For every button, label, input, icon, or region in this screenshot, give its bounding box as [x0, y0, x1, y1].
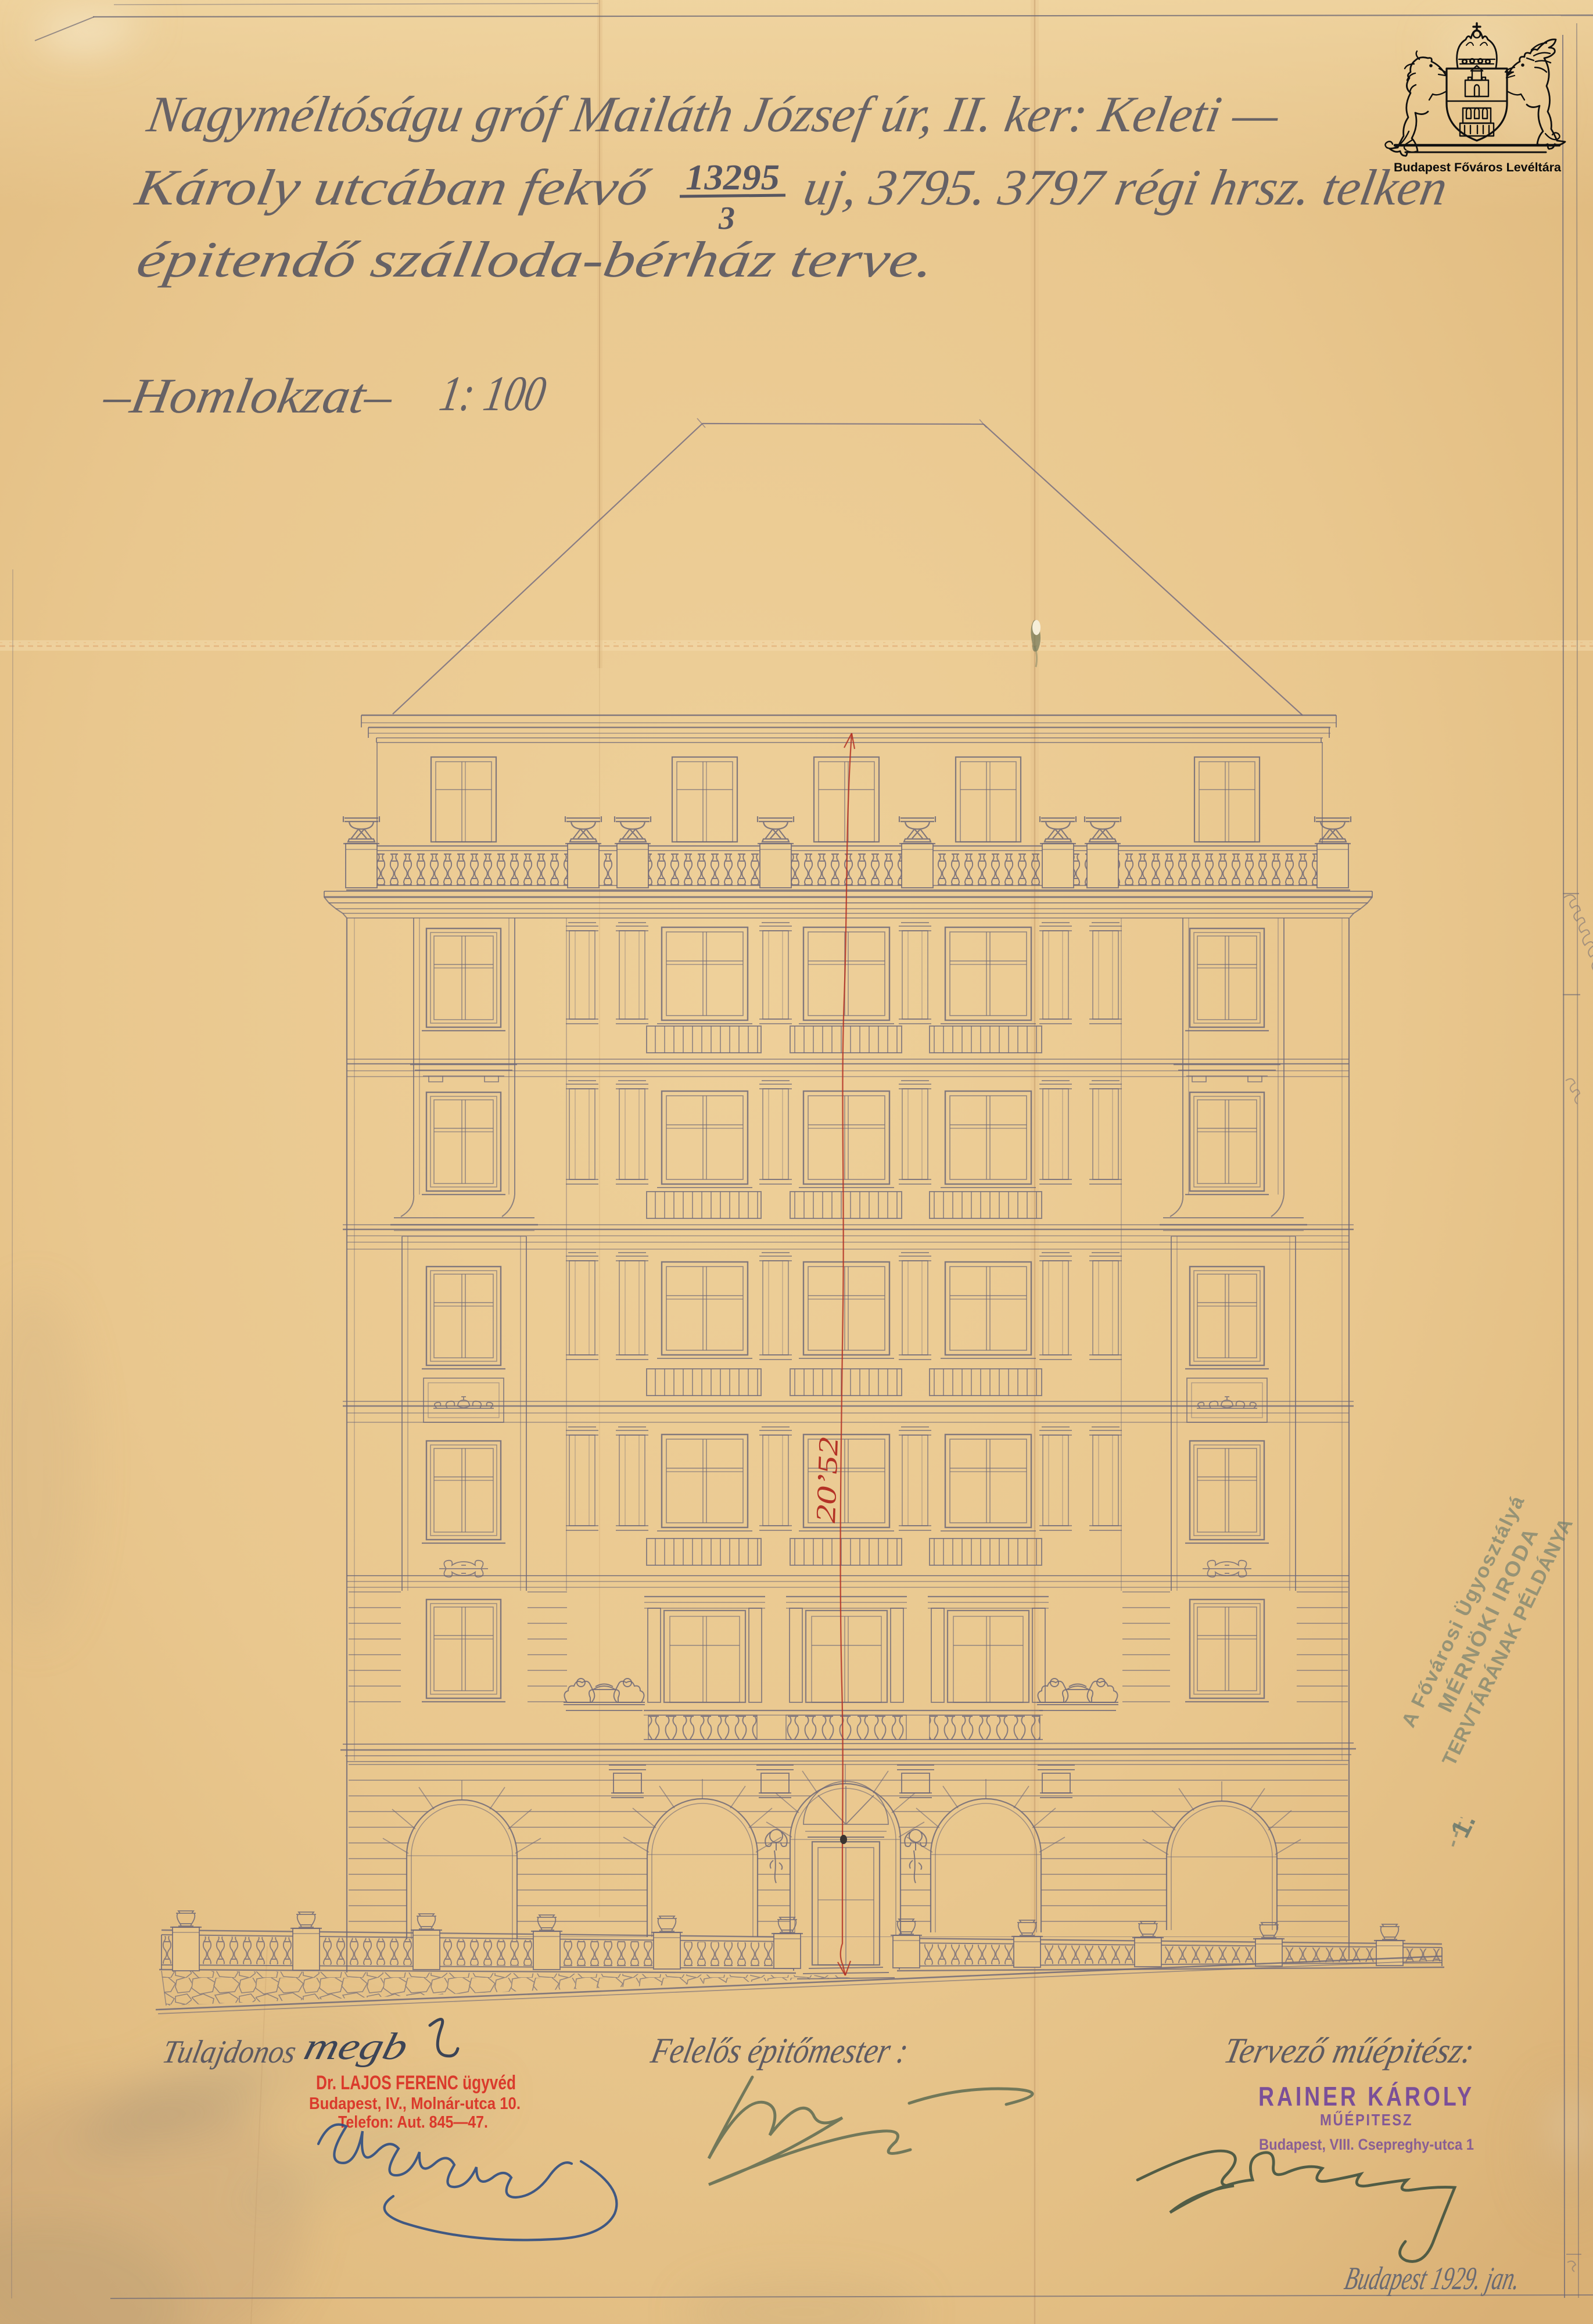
svg-text:Telefon: Aut. 845—47.: Telefon: Aut. 845—47.	[338, 2113, 488, 2132]
svg-text:13295: 13295	[686, 158, 780, 198]
svg-text:–Homlokzat–: –Homlokzat–	[99, 368, 397, 424]
svg-text:Tervező műépitész:: Tervező műépitész:	[1221, 2031, 1478, 2071]
svg-text:uj, 3795. 3797 régi hrsz. telk: uj, 3795. 3797 régi hrsz. telken	[799, 160, 1451, 216]
svg-text:Tulajdonos: Tulajdonos	[159, 2035, 299, 2070]
svg-text:megb: megb	[300, 2025, 412, 2068]
svg-text:épitendő szálloda-bérház terve: épitendő szálloda-bérház terve.	[133, 232, 939, 288]
svg-text:20’52: 20’52	[810, 1437, 844, 1524]
svg-text:Nagyméltóságu gróf Mailáth Józ: Nagyméltóságu gróf Mailáth József úr, II…	[143, 87, 1284, 143]
svg-text:Budapest Főváros Levéltára: Budapest Főváros Levéltára	[1394, 160, 1562, 174]
svg-text:MŰÉPITESZ: MŰÉPITESZ	[1320, 2111, 1413, 2129]
svg-text:Budapest, VIII. Csepreghy-utca: Budapest, VIII. Csepreghy-utca 1	[1259, 2136, 1474, 2153]
svg-text:Dr. LAJOS FERENC ügyvéd: Dr. LAJOS FERENC ügyvéd	[316, 2072, 516, 2094]
svg-text:Felelős épitőmester :: Felelős épitőmester :	[647, 2031, 912, 2071]
svg-text:Budapest 1929. jan.: Budapest 1929. jan.	[1341, 2261, 1523, 2297]
svg-text:Károly utcában fekvő: Károly utcában fekvő	[130, 160, 655, 216]
svg-text:RAINER KÁROLY: RAINER KÁROLY	[1258, 2081, 1474, 2111]
svg-text:Budapest, IV., Molnár-utca 10.: Budapest, IV., Molnár-utca 10.	[309, 2095, 521, 2113]
svg-text:1: 100: 1: 100	[436, 366, 550, 421]
